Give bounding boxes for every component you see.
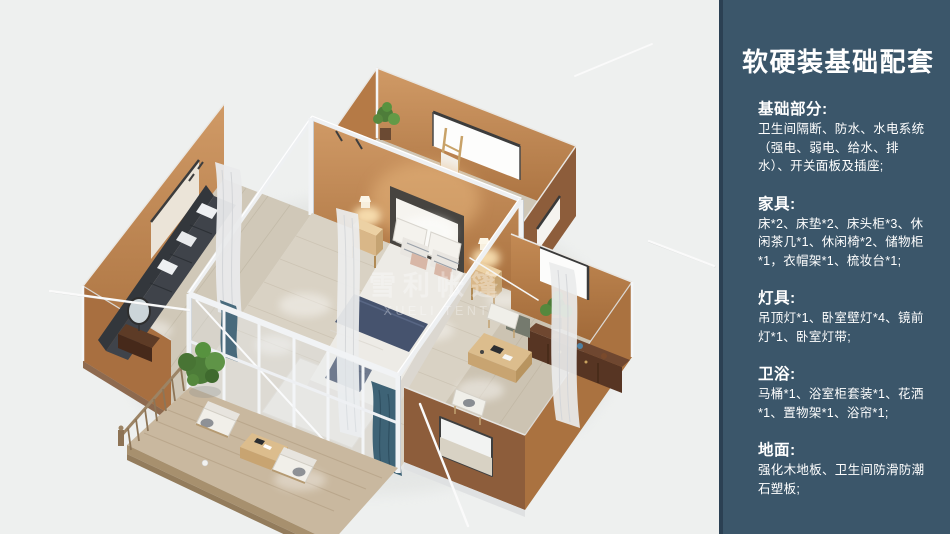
spec-section-bathroom: 卫浴: 马桶*1、浴室柜套装*1、花洒*1、置物架*1、浴帘*1; [758,365,936,422]
spec-section-furniture: 家具: 床*2、床垫*2、床头柜*3、休闲茶几*1、休闲椅*2、储物柜*1，衣帽… [758,195,936,271]
curtain-left [215,162,242,318]
watermark: 雪利帐篷 XUELI TENT [369,270,505,318]
section-body: 床*2、床垫*2、床头柜*3、休闲茶几*1、休闲椅*2、储物柜*1，衣帽架*1、… [758,215,930,271]
section-heading: 基础部分: [758,100,936,120]
spec-section-basics: 基础部分: 卫生间隔断、防水、水电系统（强电、弱电、给水、排水）、开关面板及插座… [758,100,936,176]
info-panel: 软硬装基础配套 基础部分: 卫生间隔断、防水、水电系统（强电、弱电、给水、排水）… [719,0,950,534]
spec-section-flooring: 地面: 强化木地板、卫生间防滑防潮石塑板; [758,441,936,498]
section-heading: 地面: [758,441,936,461]
brochure-slide: 雪利帐篷 XUELI TENT 软硬装基础配套 基础部分: 卫生间隔断、防水、水… [0,0,950,534]
section-body: 强化木地板、卫生间防滑防潮石塑板; [758,461,930,498]
floorplan-render-area: 雪利帐篷 XUELI TENT [0,0,719,534]
panel-title: 软硬装基础配套 [742,46,936,78]
section-body: 卫生间隔断、防水、水电系统（强电、弱电、给水、排水）、开关面板及插座; [758,120,930,176]
section-heading: 灯具: [758,289,936,309]
section-body: 吊顶灯*1、卧室壁灯*4、镜前灯*1、卧室灯带; [758,309,930,346]
blue-vase [577,343,583,349]
section-heading: 卫浴: [758,365,936,385]
watermark-cn: 雪利帐篷 [369,270,505,301]
spec-section-lighting: 灯具: 吊顶灯*1、卧室壁灯*4、镜前灯*1、卧室灯带; [758,289,936,346]
section-heading: 家具: [758,195,936,215]
floorplan-render: 雪利帐篷 XUELI TENT [0,0,719,534]
section-body: 马桶*1、浴室柜套装*1、花洒*1、置物架*1、浴帘*1; [758,385,930,422]
watermark-en: XUELI TENT [383,304,490,318]
